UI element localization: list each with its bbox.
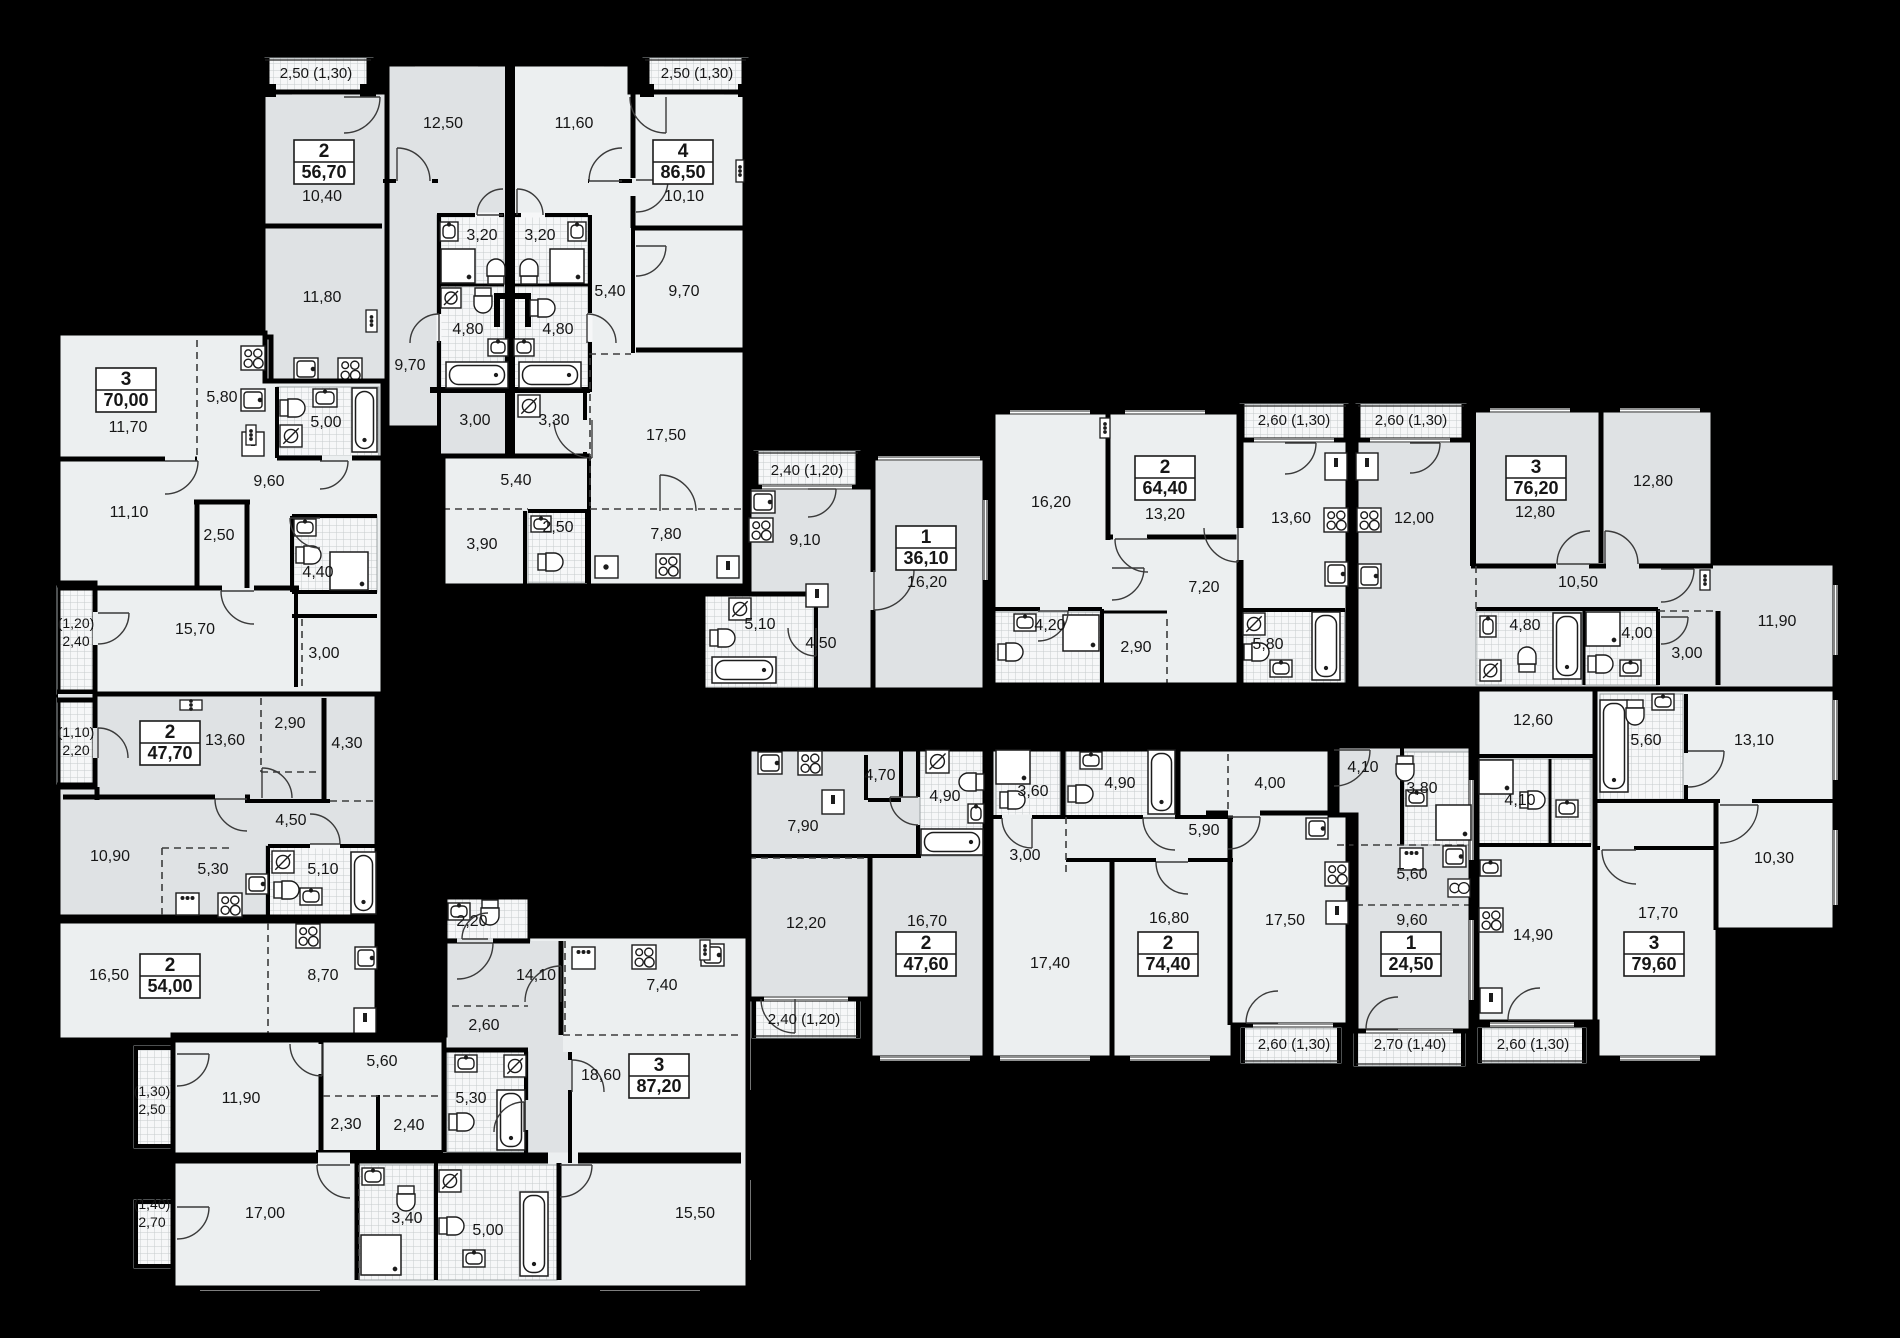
- svg-text:2,60: 2,60: [468, 1017, 499, 1034]
- svg-text:1: 1: [921, 527, 932, 548]
- svg-text:12,20: 12,20: [786, 915, 826, 932]
- svg-text:3: 3: [654, 1055, 665, 1076]
- svg-text:2,40: 2,40: [393, 1117, 424, 1134]
- svg-text:4,20: 4,20: [1034, 617, 1065, 634]
- svg-text:11,90: 11,90: [1758, 613, 1797, 630]
- svg-text:2,90: 2,90: [1120, 639, 1151, 656]
- svg-text:15,50: 15,50: [675, 1205, 715, 1222]
- svg-text:13,20: 13,20: [1145, 506, 1185, 523]
- svg-text:3,90: 3,90: [466, 536, 497, 553]
- svg-text:3,30: 3,30: [538, 412, 569, 429]
- svg-text:4,80: 4,80: [542, 321, 573, 338]
- svg-text:11,70: 11,70: [109, 419, 148, 436]
- svg-text:7,90: 7,90: [787, 818, 818, 835]
- svg-text:4,00: 4,00: [1621, 625, 1652, 642]
- svg-text:5,00: 5,00: [310, 414, 341, 431]
- svg-text:4,40: 4,40: [302, 564, 333, 581]
- svg-text:17,50: 17,50: [646, 427, 686, 444]
- svg-text:2,50: 2,50: [138, 1101, 165, 1117]
- svg-text:2: 2: [165, 722, 176, 743]
- svg-text:12,00: 12,00: [1394, 510, 1434, 527]
- svg-text:3,40: 3,40: [391, 1210, 422, 1227]
- svg-text:4,30: 4,30: [331, 735, 362, 752]
- svg-text:3,00: 3,00: [1009, 847, 1040, 864]
- svg-text:2: 2: [1160, 457, 1171, 478]
- svg-text:3: 3: [121, 369, 132, 390]
- svg-text:2,50: 2,50: [542, 519, 573, 536]
- svg-text:9,10: 9,10: [789, 532, 820, 549]
- svg-text:4,50: 4,50: [805, 635, 836, 652]
- svg-text:15,70: 15,70: [175, 621, 215, 638]
- svg-text:2,40: 2,40: [62, 633, 89, 649]
- svg-text:5,40: 5,40: [594, 283, 625, 300]
- svg-text:3,80: 3,80: [1406, 780, 1437, 797]
- svg-text:16,70: 16,70: [907, 913, 947, 930]
- svg-text:2,50 (1,30): 2,50 (1,30): [661, 65, 734, 82]
- svg-text:70,00: 70,00: [103, 390, 148, 410]
- svg-text:16,20: 16,20: [1031, 494, 1071, 511]
- svg-text:1: 1: [1406, 933, 1417, 954]
- svg-text:3: 3: [1531, 457, 1542, 478]
- svg-text:(1,20): (1,20): [58, 615, 95, 631]
- svg-text:2,60 (1,30): 2,60 (1,30): [1375, 412, 1448, 429]
- svg-text:3,00: 3,00: [308, 645, 339, 662]
- svg-text:5,30: 5,30: [197, 861, 228, 878]
- svg-text:(1,10): (1,10): [58, 724, 95, 740]
- svg-text:7,80: 7,80: [650, 526, 681, 543]
- svg-text:3,20: 3,20: [466, 227, 497, 244]
- svg-text:13,60: 13,60: [1271, 510, 1311, 527]
- svg-text:7,40: 7,40: [646, 977, 677, 994]
- svg-text:36,10: 36,10: [903, 548, 948, 568]
- svg-text:4,10: 4,10: [1504, 792, 1535, 809]
- svg-text:3,00: 3,00: [459, 412, 490, 429]
- svg-text:3: 3: [1649, 933, 1660, 954]
- svg-text:5,80: 5,80: [1252, 636, 1283, 653]
- svg-text:47,60: 47,60: [903, 954, 948, 974]
- svg-text:2,30: 2,30: [330, 1116, 361, 1133]
- svg-text:2,20: 2,20: [456, 913, 487, 930]
- svg-text:2,40 (1,20): 2,40 (1,20): [768, 1011, 841, 1028]
- svg-text:16,50: 16,50: [89, 967, 129, 984]
- svg-text:7,20: 7,20: [1188, 579, 1219, 596]
- svg-text:54,00: 54,00: [147, 976, 192, 996]
- svg-text:9,70: 9,70: [394, 357, 425, 374]
- svg-text:2,90: 2,90: [274, 715, 305, 732]
- svg-text:2,50: 2,50: [203, 527, 234, 544]
- svg-text:(1,40): (1,40): [134, 1196, 171, 1212]
- svg-text:13,10: 13,10: [1734, 732, 1774, 749]
- svg-text:86,50: 86,50: [660, 162, 705, 182]
- svg-text:5,90: 5,90: [1188, 822, 1219, 839]
- svg-text:9,70: 9,70: [668, 283, 699, 300]
- svg-text:(1,30): (1,30): [134, 1083, 171, 1099]
- svg-text:2: 2: [319, 141, 330, 162]
- svg-text:8,70: 8,70: [307, 967, 338, 984]
- svg-text:2: 2: [1163, 933, 1174, 954]
- svg-text:4,80: 4,80: [1509, 617, 1540, 634]
- svg-text:2,60 (1,30): 2,60 (1,30): [1258, 412, 1331, 429]
- svg-text:5,60: 5,60: [1396, 866, 1427, 883]
- svg-text:74,40: 74,40: [1145, 954, 1190, 974]
- svg-text:24,50: 24,50: [1388, 954, 1433, 974]
- svg-text:4,90: 4,90: [1104, 775, 1135, 792]
- svg-text:12,80: 12,80: [1515, 504, 1555, 521]
- svg-text:16,80: 16,80: [1149, 910, 1189, 927]
- svg-text:4,10: 4,10: [1347, 759, 1378, 776]
- svg-text:4: 4: [678, 141, 689, 162]
- svg-text:12,80: 12,80: [1633, 473, 1673, 490]
- svg-text:5,00: 5,00: [472, 1222, 503, 1239]
- svg-text:14,90: 14,90: [1513, 927, 1553, 944]
- svg-text:64,40: 64,40: [1142, 478, 1187, 498]
- svg-text:4,50: 4,50: [275, 812, 306, 829]
- svg-text:5,40: 5,40: [500, 472, 531, 489]
- svg-text:11,90: 11,90: [222, 1090, 261, 1107]
- svg-text:2,60 (1,30): 2,60 (1,30): [1497, 1036, 1570, 1053]
- svg-text:10,50: 10,50: [1558, 574, 1598, 591]
- svg-text:76,20: 76,20: [1513, 478, 1558, 498]
- svg-text:2: 2: [921, 933, 932, 954]
- svg-text:2,70: 2,70: [138, 1214, 165, 1230]
- svg-text:10,30: 10,30: [1754, 850, 1794, 867]
- svg-text:10,40: 10,40: [302, 188, 342, 205]
- svg-text:4,00: 4,00: [1254, 775, 1285, 792]
- svg-text:5,60: 5,60: [1630, 732, 1661, 749]
- svg-text:5,60: 5,60: [366, 1053, 397, 1070]
- svg-text:47,70: 47,70: [147, 743, 192, 763]
- svg-text:87,20: 87,20: [636, 1076, 681, 1096]
- svg-text:10,10: 10,10: [664, 188, 704, 205]
- svg-text:13,60: 13,60: [205, 732, 245, 749]
- svg-text:2: 2: [165, 955, 176, 976]
- svg-text:3,00: 3,00: [1671, 645, 1702, 662]
- svg-text:56,70: 56,70: [301, 162, 346, 182]
- svg-text:79,60: 79,60: [1631, 954, 1676, 974]
- svg-text:2,60 (1,30): 2,60 (1,30): [1258, 1036, 1331, 1053]
- svg-text:11,10: 11,10: [110, 504, 149, 521]
- svg-text:17,70: 17,70: [1638, 905, 1678, 922]
- svg-text:5,80: 5,80: [206, 389, 237, 406]
- svg-text:3,60: 3,60: [1017, 783, 1048, 800]
- svg-text:17,00: 17,00: [245, 1205, 285, 1222]
- svg-text:16,20: 16,20: [907, 574, 947, 591]
- svg-text:12,60: 12,60: [1513, 712, 1553, 729]
- svg-text:4,90: 4,90: [929, 788, 960, 805]
- svg-text:18,60: 18,60: [581, 1067, 621, 1084]
- svg-text:9,60: 9,60: [1396, 912, 1427, 929]
- svg-text:9,60: 9,60: [253, 473, 284, 490]
- svg-text:10,90: 10,90: [90, 848, 130, 865]
- svg-text:2,20: 2,20: [62, 742, 89, 758]
- svg-text:5,10: 5,10: [744, 616, 775, 633]
- svg-text:5,10: 5,10: [307, 861, 338, 878]
- svg-text:4,80: 4,80: [452, 321, 483, 338]
- svg-text:2,50 (1,30): 2,50 (1,30): [280, 65, 353, 82]
- svg-text:11,60: 11,60: [555, 115, 594, 132]
- svg-text:12,50: 12,50: [423, 115, 463, 132]
- svg-text:2,40 (1,20): 2,40 (1,20): [771, 462, 844, 479]
- svg-text:5,30: 5,30: [455, 1090, 486, 1107]
- svg-text:2,70 (1,40): 2,70 (1,40): [1374, 1036, 1447, 1053]
- svg-text:11,80: 11,80: [303, 289, 342, 306]
- svg-text:17,50: 17,50: [1265, 912, 1305, 929]
- svg-text:4,70: 4,70: [864, 767, 895, 784]
- svg-text:17,40: 17,40: [1030, 955, 1070, 972]
- svg-text:14,10: 14,10: [516, 967, 556, 984]
- svg-text:3,20: 3,20: [524, 227, 555, 244]
